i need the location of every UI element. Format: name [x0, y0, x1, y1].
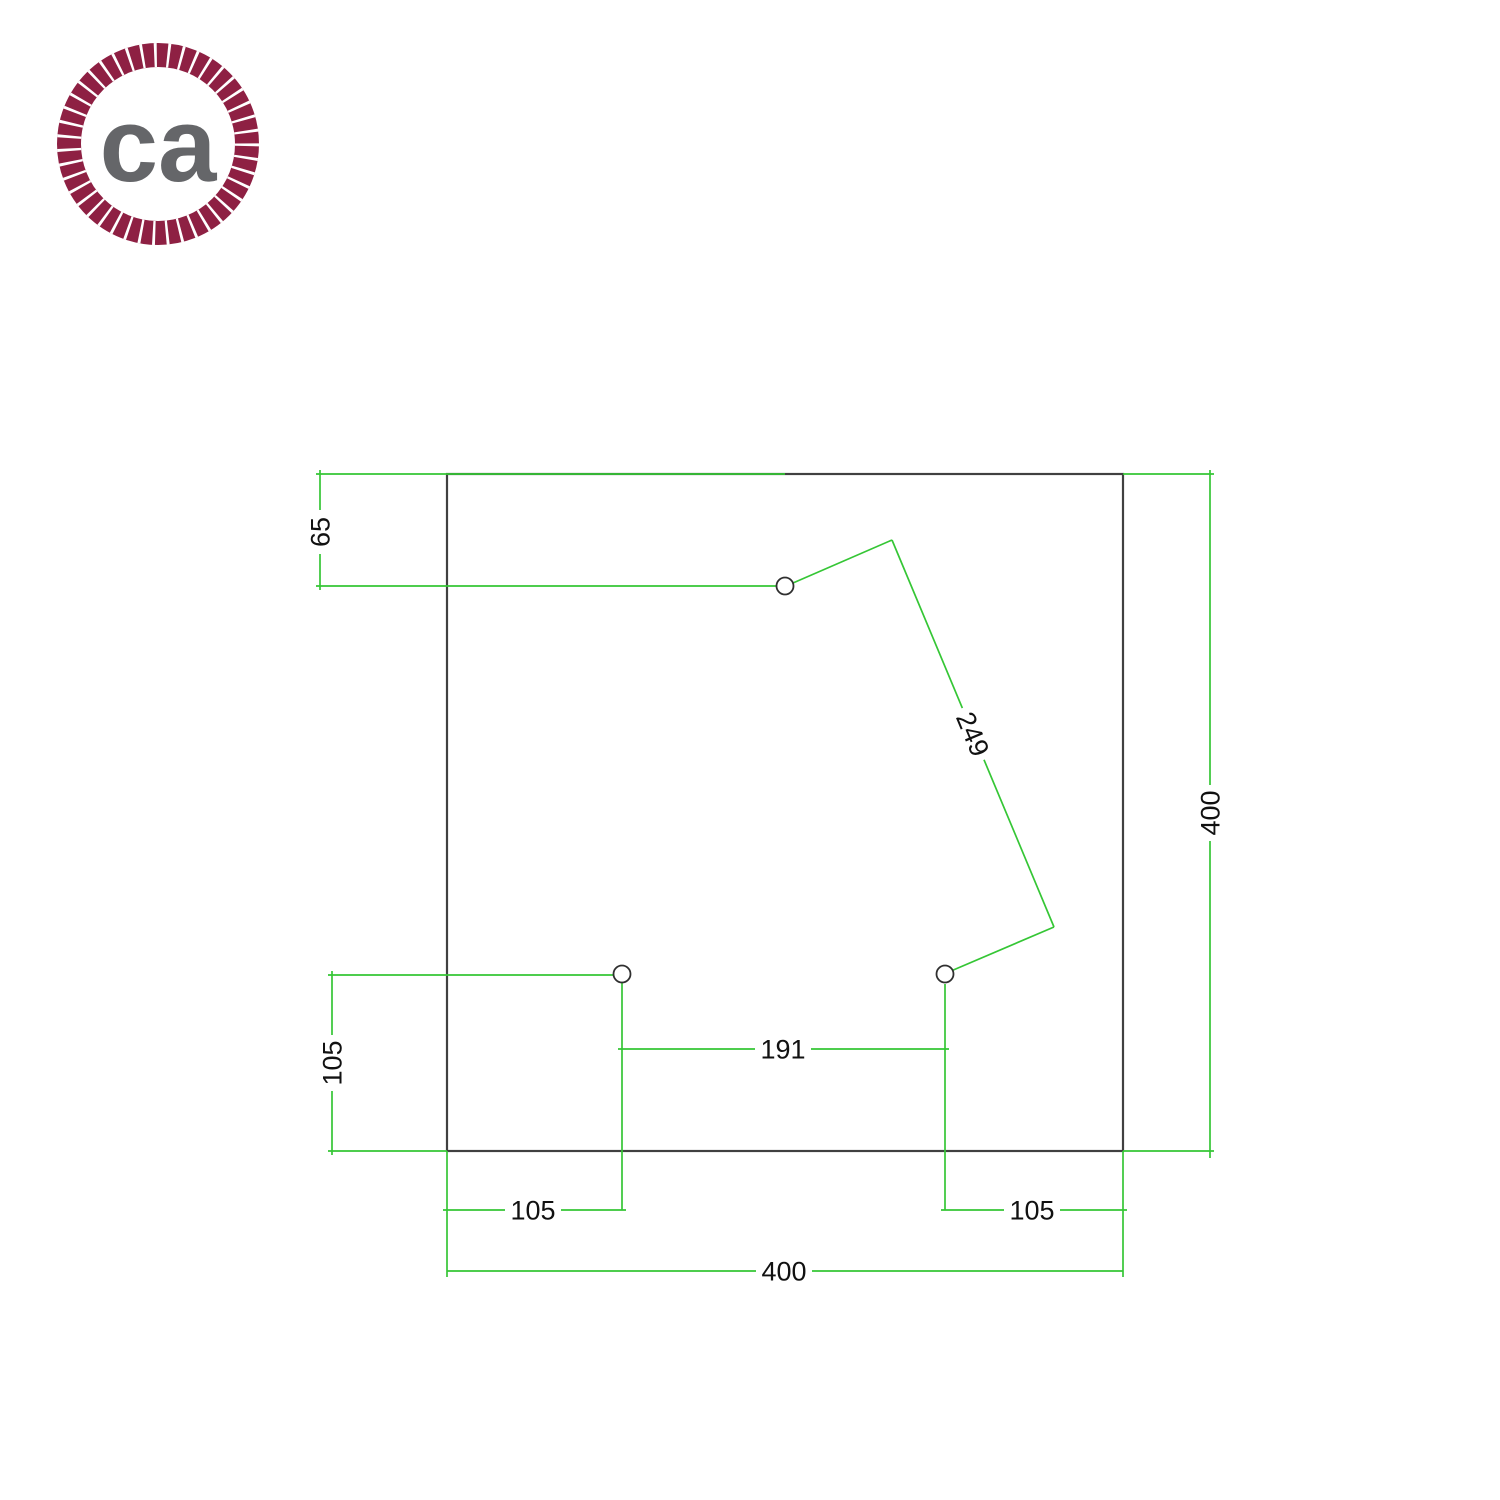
label-overall-width: 400 — [756, 1257, 812, 1287]
dimension-value: 105 — [510, 1196, 555, 1226]
label-overall-height: 400 — [1196, 785, 1226, 841]
hole-bottom-left — [614, 966, 631, 983]
dimension-value: 105 — [318, 1040, 348, 1085]
label-bottom-left-offset: 105 — [505, 1196, 561, 1226]
dimension-value: 191 — [760, 1035, 805, 1065]
label-left-offset: 105 — [318, 1035, 348, 1091]
dimension-value: 65 — [306, 517, 336, 547]
brand-logo: ca — [57, 43, 258, 244]
dimension-value: 400 — [1196, 790, 1226, 835]
dimension-value: 105 — [1009, 1196, 1054, 1226]
label-bottom-right-offset: 105 — [1004, 1196, 1060, 1226]
label-holes-spacing: 191 — [755, 1035, 811, 1065]
label-top-offset: 65 — [306, 510, 336, 554]
hole-bottom-right — [937, 966, 954, 983]
hole-top-center — [777, 578, 794, 595]
drawing-canvas: ca — [0, 0, 1500, 1500]
dimension-value: 400 — [761, 1257, 806, 1287]
logo-text: ca — [100, 87, 218, 204]
technical-drawing: ca — [0, 0, 1500, 1500]
